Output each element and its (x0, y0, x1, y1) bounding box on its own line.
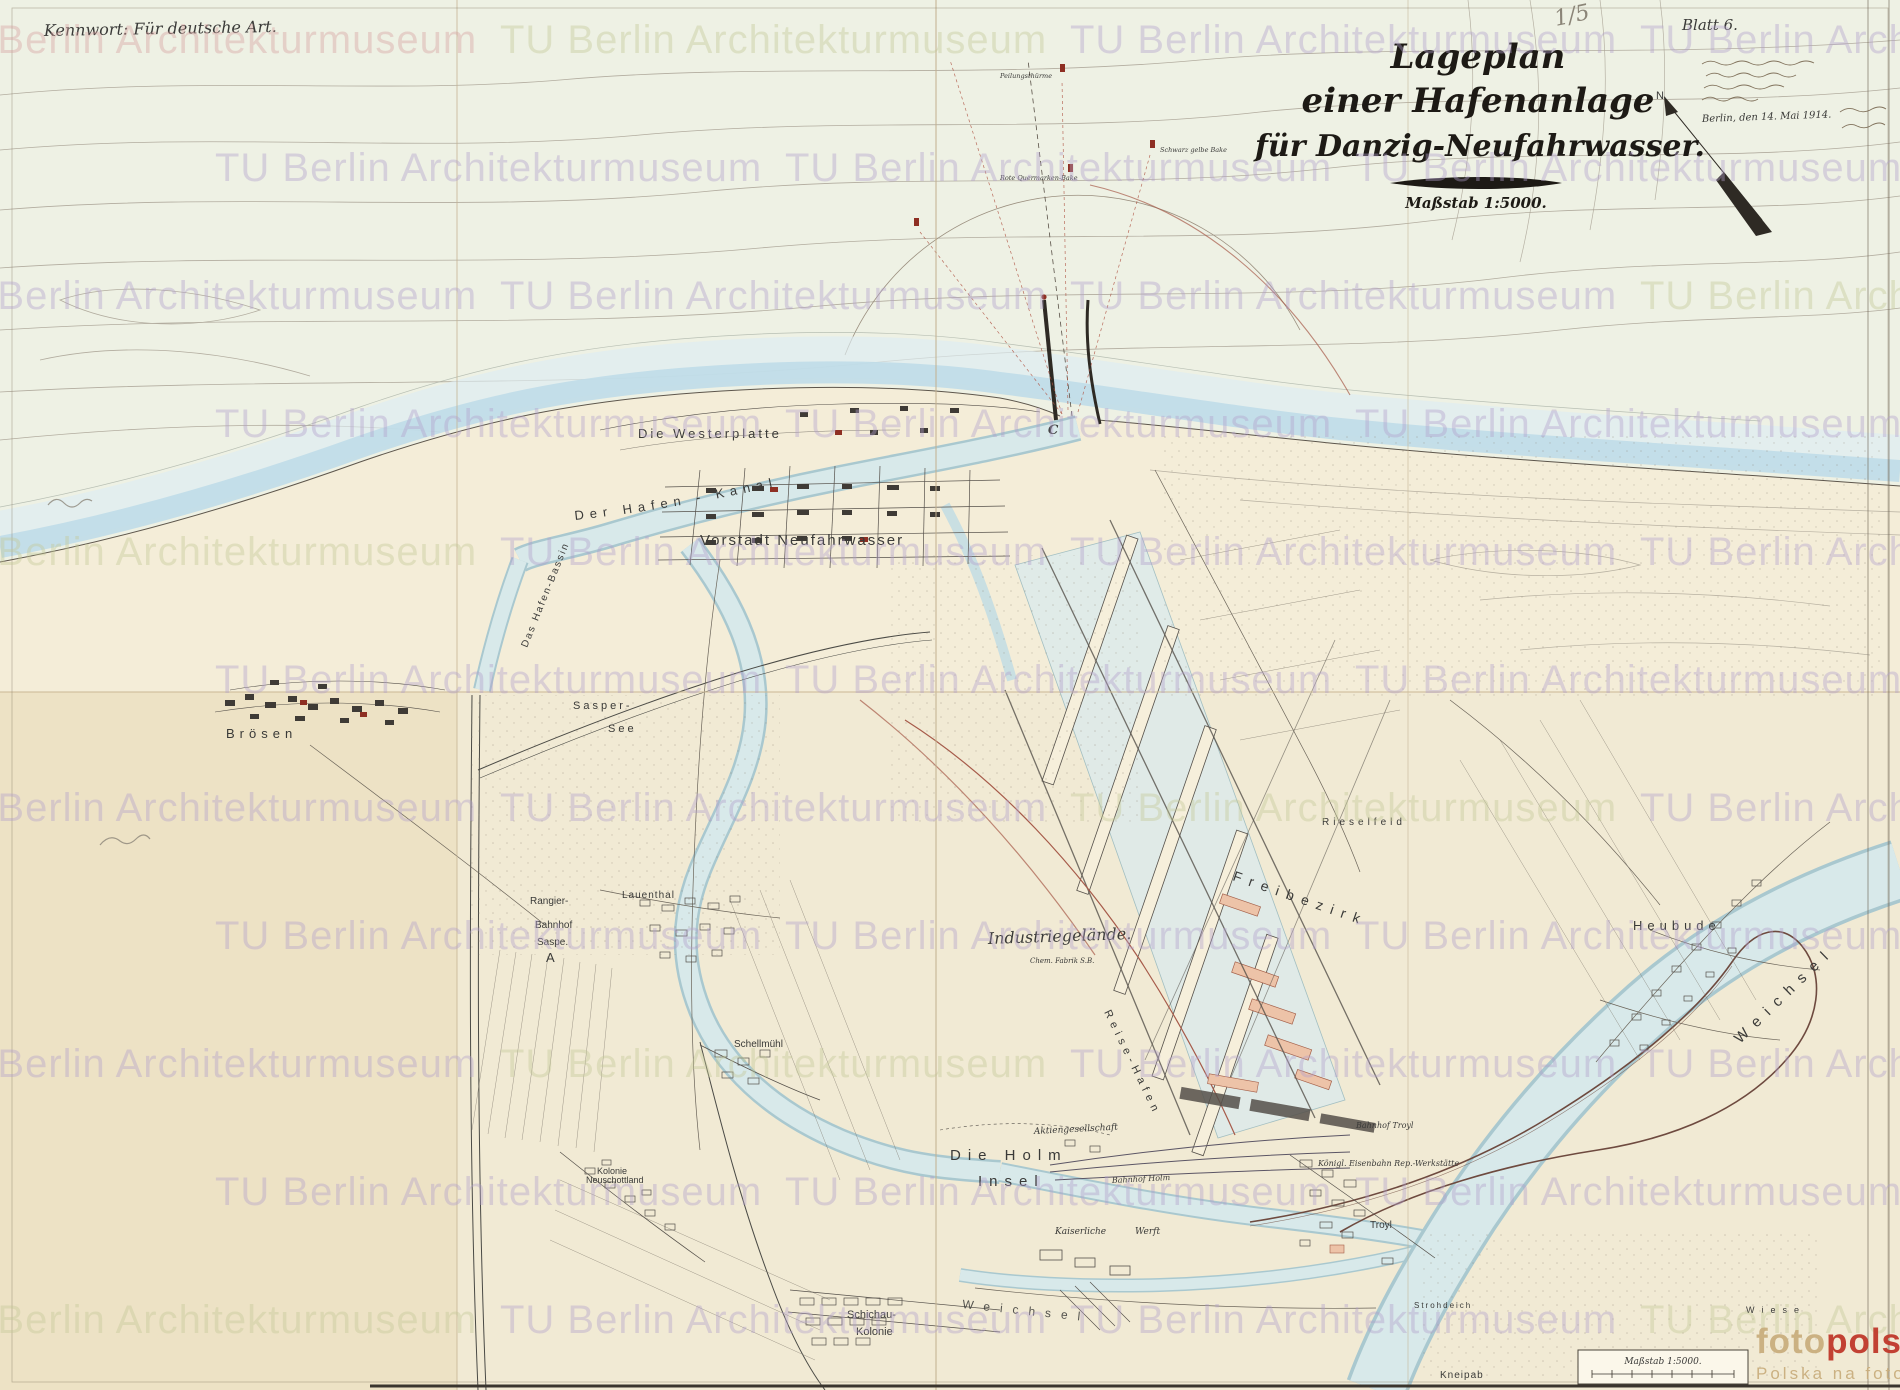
label-westerplatte: Die Westerplatte (638, 426, 782, 441)
label-troyl: Troyl (1370, 1220, 1392, 1231)
label-schwarz-bake: Schwarz gelbe Bake (1160, 146, 1227, 154)
label-lauenthal: Lauenthal (622, 890, 675, 901)
map-scale-note: Maßstab 1:5000. (1404, 194, 1546, 212)
map-title-line1: Lageplan (1390, 37, 1566, 77)
label-rieselfeld: Rieselfeld (1322, 817, 1406, 828)
label-kneipab: Kneipab (1440, 1370, 1484, 1381)
label-rangier-3: Saspe. (537, 937, 568, 948)
label-sasper-see-1: Sasper- (573, 700, 633, 712)
label-rangier-4: A (546, 950, 555, 965)
label-peilungsthuerme: Peilungsthürme (999, 72, 1052, 80)
label-eisenbahn-werkstaette: Königl. Eisenbahn Rep.-Werkstätte (1317, 1159, 1459, 1168)
label-kolonie-2: Neuschottland (586, 1175, 644, 1185)
label-strohdeich: Strohdeich (1414, 1301, 1472, 1310)
label-holm-1: Die Holm (950, 1147, 1068, 1164)
label-wiese: Wiese (1746, 1305, 1806, 1315)
map-drawing: Maßstab 1:5000. Kennwort: Für deutsche A… (0, 0, 1900, 1390)
scale-box-label: Maßstab 1:5000. (1623, 1357, 1701, 1367)
label-sasper-see-2: See (608, 723, 637, 735)
label-kaiserliche-werft: Kaiserliche Werft (1054, 1227, 1160, 1237)
north-label: N. (1656, 90, 1667, 102)
scale-box: Maßstab 1:5000. (1578, 1350, 1748, 1384)
label-chem-fabrik: Chem. Fabrik S.B. (1030, 957, 1094, 965)
label-rote-bake: Rote Quermarken-Bake (999, 174, 1078, 182)
label-bahnhof-troyl: Bahnhof Troyl (1355, 1121, 1414, 1130)
label-holm-2: Insel (978, 1173, 1045, 1190)
label-heubude: Heubude (1633, 918, 1721, 933)
label-schellmuehl: Schellmühl (734, 1039, 783, 1050)
label-rangier-1: Rangier- (530, 896, 568, 907)
map-title-line2: einer Hafenanlage (1302, 81, 1655, 121)
sheet-number-label: Blatt 6. (1681, 16, 1738, 34)
label-vorstadt: Vorstadt Neufahrwasser (700, 532, 904, 549)
label-broesen: Brösen (226, 726, 297, 741)
label-schichau-1: Schichau- (847, 1309, 896, 1321)
map-scan: Maßstab 1:5000. Kennwort: Für deutsche A… (0, 0, 1900, 1390)
label-schichau-2: Kolonie (856, 1326, 893, 1338)
label-marker-c: C (1048, 423, 1059, 438)
map-title-line3: für Danzig-Neufahrwasser. (1253, 129, 1705, 164)
label-rangier-2: Bahnhof (535, 920, 572, 931)
